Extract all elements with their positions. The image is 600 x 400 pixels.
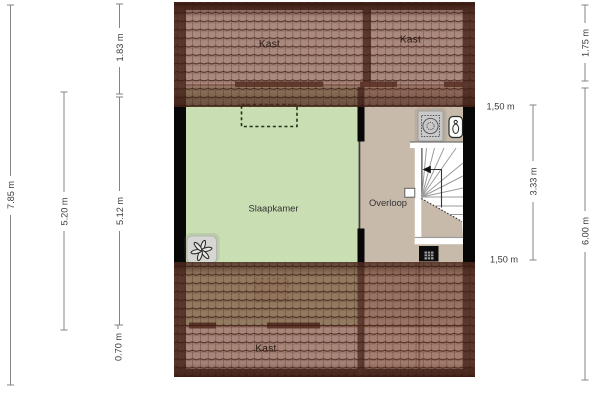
svg-text:Kast: Kast <box>400 35 421 46</box>
svg-text:1,50 m: 1,50 m <box>487 101 515 111</box>
svg-text:6.00 m: 6.00 m <box>581 217 591 245</box>
svg-text:Slaapkamer: Slaapkamer <box>248 203 298 214</box>
svg-text:Kast: Kast <box>259 39 280 50</box>
svg-text:1.75 m: 1.75 m <box>581 29 591 57</box>
svg-text:5.12 m: 5.12 m <box>115 197 125 225</box>
svg-text:1,50 m: 1,50 m <box>490 255 518 265</box>
svg-text:Kast: Kast <box>255 344 276 355</box>
svg-text:1.83 m: 1.83 m <box>115 33 125 61</box>
svg-text:3.33 m: 3.33 m <box>529 167 539 195</box>
svg-text:0.70 m: 0.70 m <box>114 333 124 361</box>
svg-text:7.85 m: 7.85 m <box>6 181 16 209</box>
svg-text:Overloop: Overloop <box>369 197 407 208</box>
svg-text:5.20 m: 5.20 m <box>60 197 70 225</box>
